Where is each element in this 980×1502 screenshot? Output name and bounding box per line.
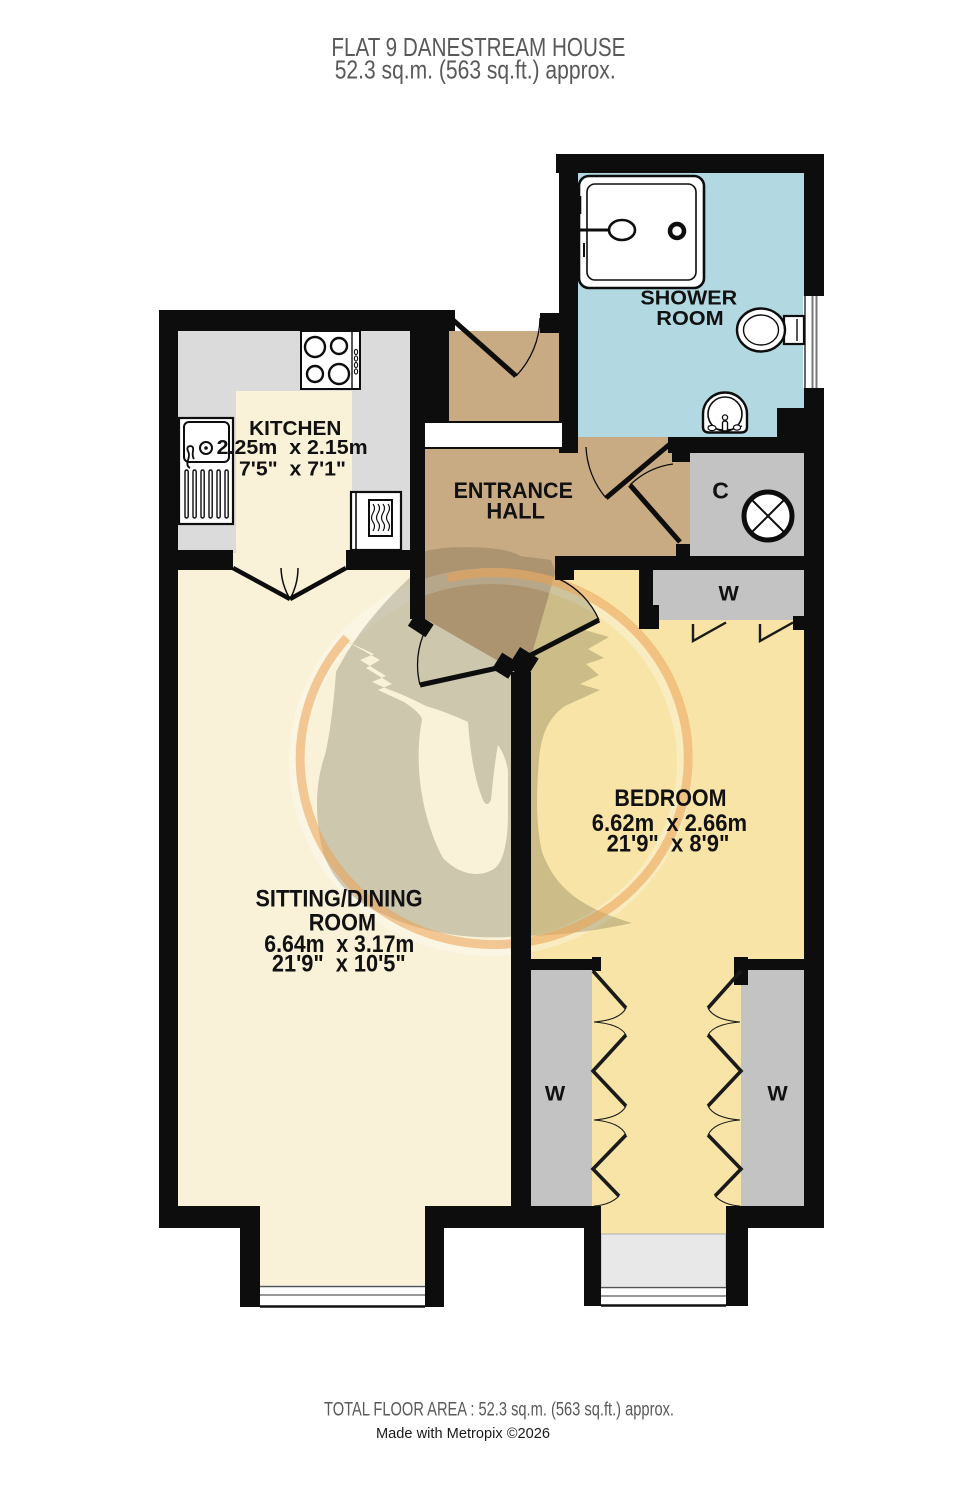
svg-text:2.25m x 2.15m: 2.25m x 2.15m [217,437,368,459]
svg-text:21'9" x 10'5": 21'9" x 10'5" [272,951,406,978]
svg-text:W: W [719,582,740,606]
svg-text:BEDROOM: BEDROOM [614,785,726,812]
svg-text:W: W [767,1081,788,1105]
svg-text:W: W [545,1081,566,1105]
svg-text:Made with Metropix ©2026: Made with Metropix ©2026 [376,1425,550,1442]
svg-text:SHOWER: SHOWER [640,286,737,309]
svg-text:HALL: HALL [486,499,545,524]
svg-text:C: C [712,478,729,504]
svg-text:52.3 sq.m. (563 sq.ft.) approx: 52.3 sq.m. (563 sq.ft.) approx. [335,55,616,85]
svg-text:7'5" x 7'1": 7'5" x 7'1" [239,459,346,481]
svg-text:TOTAL FLOOR AREA : 52.3 sq.m.: TOTAL FLOOR AREA : 52.3 sq.m. (563 sq.ft… [324,1400,674,1421]
svg-text:21'9" x 8'9": 21'9" x 8'9" [607,831,730,858]
svg-text:ROOM: ROOM [656,307,723,330]
